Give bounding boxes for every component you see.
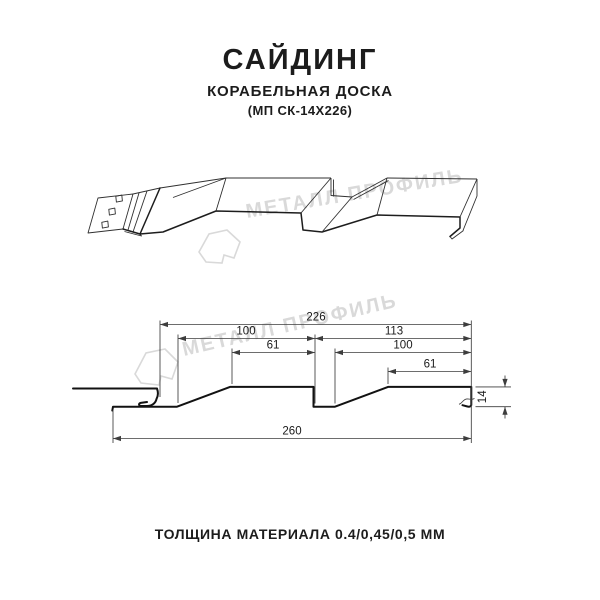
nail-hole-icon xyxy=(116,195,123,202)
nail-hole-icon xyxy=(109,208,116,215)
dim-label-61-right: 61 xyxy=(424,359,437,371)
dim-label-113: 113 xyxy=(385,326,403,338)
dim-label-14: 14 xyxy=(477,390,489,403)
dim-14: 14 xyxy=(477,376,508,419)
dim-label-100-right: 100 xyxy=(393,340,412,352)
dim-label-226: 226 xyxy=(306,312,325,324)
brand-logo-icon xyxy=(135,349,178,385)
dim-label-61-left: 61 xyxy=(267,340,280,352)
dim-226: 226 xyxy=(160,312,471,328)
dim-label-100-left: 100 xyxy=(236,326,255,338)
dim-260: 260 xyxy=(113,426,471,442)
nail-hole-icon xyxy=(102,221,109,228)
page: { "header": { "title": "САЙДИНГ", "subti… xyxy=(0,0,600,600)
watermark-bottom: МЕТАЛЛ ПРОФИЛЬ xyxy=(135,290,400,385)
nail-strip xyxy=(88,194,133,233)
dim-label-260: 260 xyxy=(282,426,301,438)
watermark-text: МЕТАЛЛ ПРОФИЛЬ xyxy=(180,290,399,361)
watermark-text: МЕТАЛЛ ПРОФИЛЬ xyxy=(244,165,465,223)
cross-section-profile xyxy=(73,387,475,411)
diagram-canvas: МЕТАЛЛ ПРОФИЛЬ МЕТАЛЛ ПРОФИЛЬ xyxy=(0,0,600,600)
thickness-note: ТОЛЩИНА МАТЕРИАЛА 0.4/0,45/0,5 ММ xyxy=(0,526,600,542)
brand-logo-icon xyxy=(199,230,240,263)
panel-front-edges xyxy=(140,211,460,237)
profile-flange-lock xyxy=(73,389,158,407)
hem-fold xyxy=(123,188,160,236)
watermark-top: МЕТАЛЛ ПРОФИЛЬ xyxy=(199,165,465,263)
profile-body xyxy=(112,387,471,411)
dim-61-right: 61 xyxy=(388,359,471,375)
dim-100-right: 100 xyxy=(335,340,471,356)
